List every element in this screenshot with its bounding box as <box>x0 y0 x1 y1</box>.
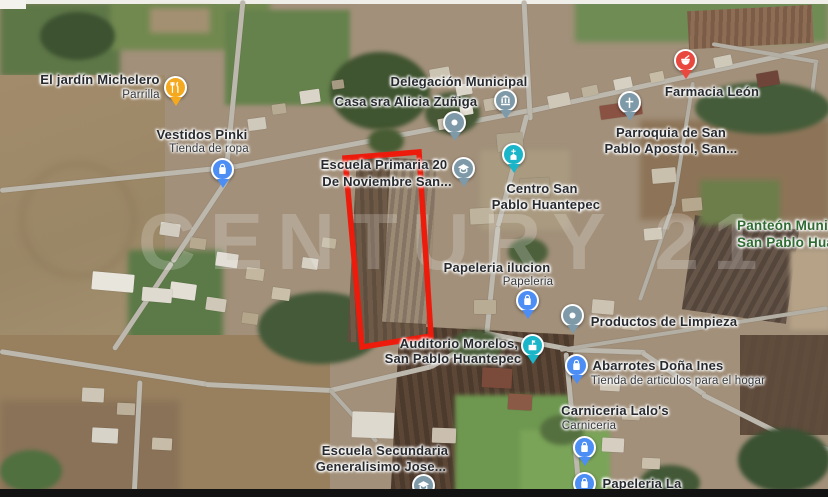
building <box>141 287 172 304</box>
poi-sublabel: Tienda de articulos para el hogar <box>591 375 765 387</box>
poi-label[interactable]: Abarrotes Doña Ines <box>593 358 724 373</box>
building <box>82 387 105 402</box>
building <box>331 79 344 90</box>
building <box>152 437 173 450</box>
poi-label[interactable]: Productos de Limpieza <box>591 314 738 329</box>
tree-cluster <box>368 128 404 154</box>
poi-label[interactable]: Delegación Municipal <box>391 74 528 89</box>
poi-label[interactable]: Pablo Huantepec <box>492 197 600 212</box>
poi-label[interactable]: Escuela Primaria 20 <box>321 157 448 172</box>
building <box>547 92 571 109</box>
poi-sublabel: Papeleria <box>503 276 553 288</box>
church-pin-icon[interactable] <box>502 143 525 166</box>
dot-pin-icon[interactable] <box>443 111 466 134</box>
building <box>352 411 395 438</box>
road <box>522 0 533 120</box>
poi-label[interactable]: San Pablo Huantepec <box>385 351 522 366</box>
poi-sublabel: Carniceria <box>562 420 616 432</box>
poi-label[interactable]: Escuela Secundaria <box>322 443 448 458</box>
poi-label[interactable]: Generalisimo Jose... <box>316 459 446 474</box>
poi-label[interactable]: Casa sra Alicia Zuñiga <box>335 94 478 109</box>
bottom-bar <box>0 489 828 497</box>
tree-cluster <box>40 12 115 60</box>
building <box>481 367 512 389</box>
building <box>91 271 134 293</box>
school-pin-icon[interactable] <box>452 157 475 180</box>
building <box>271 103 286 115</box>
building <box>247 117 266 131</box>
poi-label[interactable]: Panteón Muni <box>737 218 828 233</box>
terrain-patch <box>150 8 210 33</box>
shopping-pin-icon[interactable] <box>516 289 539 312</box>
building <box>241 312 258 325</box>
building <box>432 428 457 444</box>
building <box>602 437 625 452</box>
shopping-pin-icon[interactable] <box>573 436 596 459</box>
cross-pin-icon[interactable] <box>618 91 641 114</box>
building <box>651 167 676 184</box>
building <box>299 89 321 105</box>
government-pin-icon[interactable] <box>494 89 517 112</box>
tree-cluster <box>330 52 430 130</box>
poi-label[interactable]: Pablo Apostol, San... <box>604 141 737 156</box>
building <box>642 458 661 470</box>
building <box>474 300 496 314</box>
building <box>591 299 614 315</box>
poi-label[interactable]: El jardín Michelero <box>40 72 159 87</box>
building <box>205 297 227 313</box>
poi-label[interactable]: Auditorio Morelos, <box>400 336 518 351</box>
auditorium-pin-icon[interactable] <box>521 334 544 357</box>
dot-pin-icon[interactable] <box>561 304 584 327</box>
poi-sublabel: Parrilla <box>122 89 159 101</box>
restaurant-pin-icon[interactable] <box>164 76 187 99</box>
poi-label[interactable]: Papeleria ilucion <box>444 260 551 275</box>
poi-sublabel: Tienda de ropa <box>169 143 249 155</box>
tree-cluster <box>738 428 828 492</box>
building <box>508 393 533 410</box>
poi-label[interactable]: Carniceria Lalo's <box>561 403 669 418</box>
shopping-pin-icon[interactable] <box>565 354 588 377</box>
building <box>92 427 119 443</box>
building <box>271 287 290 301</box>
poi-label[interactable]: Vestidos Pinki <box>157 127 248 142</box>
satellite-map[interactable]: CENTURY 21 El jardín Michelero Parrilla … <box>0 0 828 497</box>
poi-label[interactable]: De Noviembre San... <box>322 174 452 189</box>
poi-label[interactable]: Centro San <box>506 181 577 196</box>
pharmacy-pin-icon[interactable] <box>674 49 697 72</box>
terrain-patch <box>790 250 828 330</box>
terrain-patch <box>0 0 828 4</box>
tree-cluster <box>0 450 62 492</box>
building <box>117 403 136 416</box>
shopping-pin-icon[interactable] <box>211 158 234 181</box>
poi-label[interactable]: San Pablo Hua <box>737 235 828 250</box>
terrain-patch <box>687 5 814 49</box>
terrain-patch <box>0 0 26 9</box>
poi-label[interactable]: Parroquia de San <box>616 125 726 140</box>
poi-label[interactable]: Farmacia León <box>665 84 759 99</box>
